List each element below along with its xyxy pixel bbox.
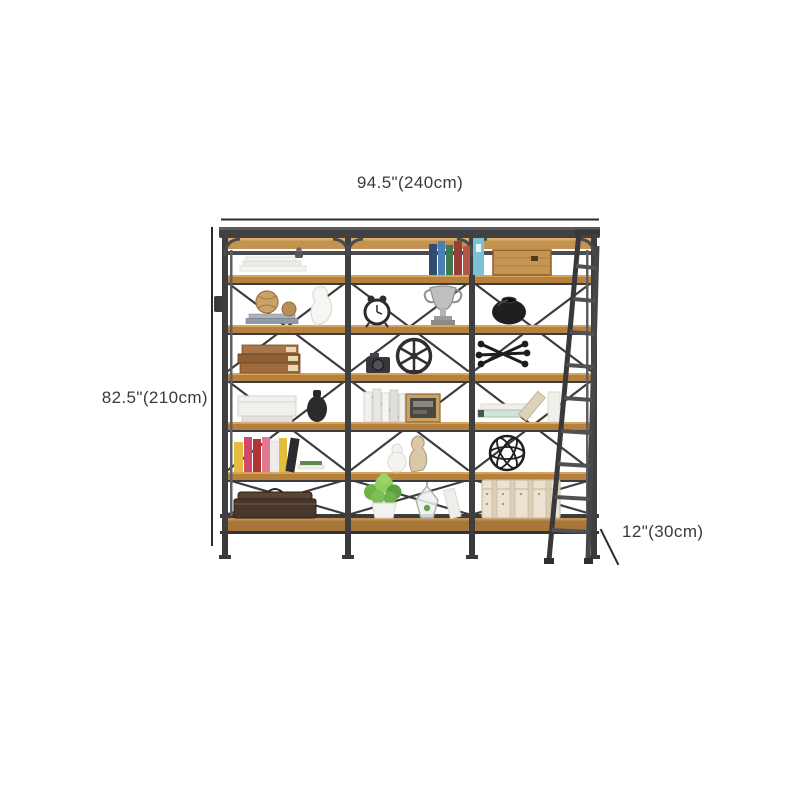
shelf-row-3-decor [238,340,530,374]
white-sculpted-vase [388,444,406,472]
spoked-wheel-ornament [398,340,431,374]
picture-frame [406,394,440,422]
dark-briefcase [234,489,316,518]
black-vase-small [307,390,327,422]
depth-dimension-label: 12"(30cm) [622,522,752,542]
glass-terrarium [416,482,438,518]
alarm-clock [365,296,389,328]
white-curvy-vase [311,287,332,325]
width-dimension-label: 94.5"(240cm) [290,173,530,193]
white-books-row [364,389,405,422]
colorful-book-row [234,437,324,473]
depth-dimension-line [601,530,618,564]
antique-book-stack [238,345,300,373]
height-dimension-label: 82.5"(210cm) [88,388,208,408]
shelf-row-4-decor [238,389,560,422]
white-storage-box [238,396,296,422]
stack-of-papers [240,247,306,271]
shelf-row-5-decor [234,435,524,472]
wooden-crate [493,250,551,275]
beige-gourd-vase [410,436,427,472]
jack-sculpture [476,341,531,368]
shelf-row-2-decor [246,286,526,327]
rattan-balls-on-books [246,291,298,324]
product-image: 94.5"(240cm) 82.5"(210cm) 12"(30cm) [0,0,800,800]
canvas-trunk [482,480,560,518]
white-upright-book [548,392,560,422]
